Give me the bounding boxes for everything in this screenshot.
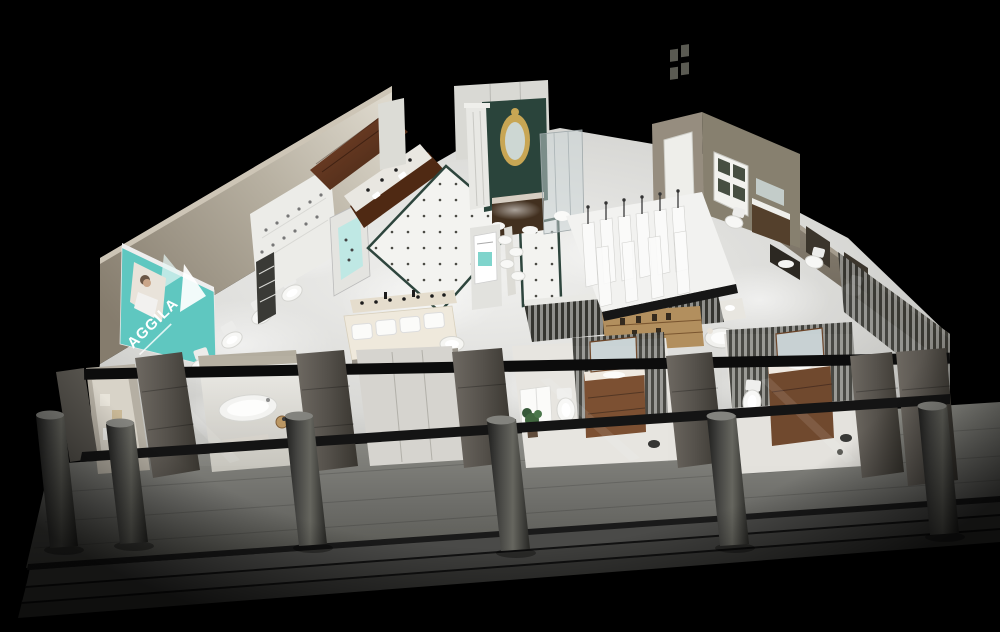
render-canvas: AGGILA bbox=[0, 0, 1000, 632]
lighting-vignette bbox=[0, 0, 1000, 632]
showroom-3d-render: AGGILA bbox=[0, 0, 1000, 632]
